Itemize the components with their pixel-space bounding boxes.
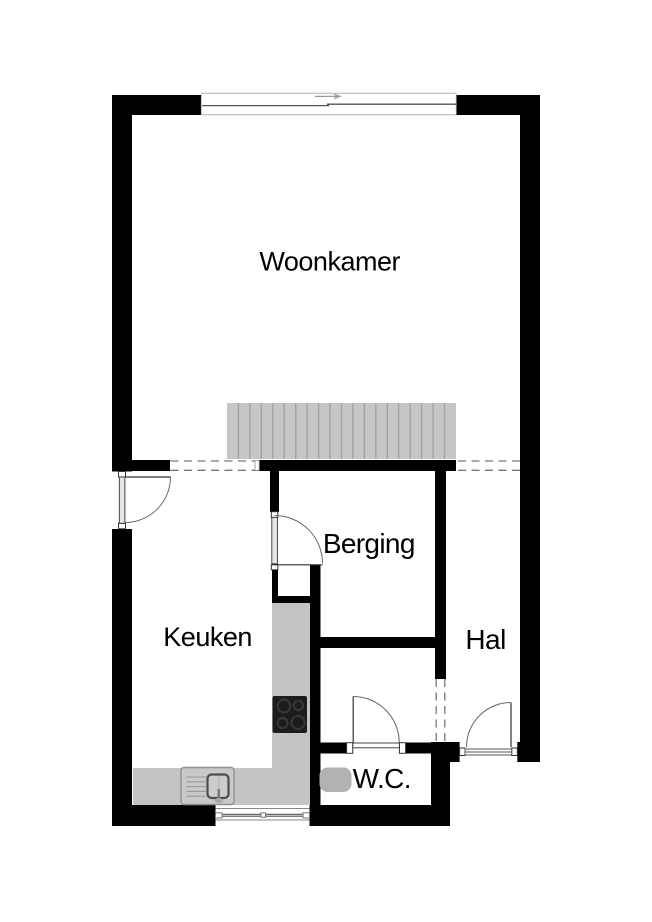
svg-text:Woonkamer: Woonkamer [259,247,400,277]
svg-text:Berging: Berging [323,528,415,559]
svg-text:Keuken: Keuken [163,622,252,652]
svg-text:Hal: Hal [465,624,506,655]
svg-text:W.C.: W.C. [353,763,411,794]
